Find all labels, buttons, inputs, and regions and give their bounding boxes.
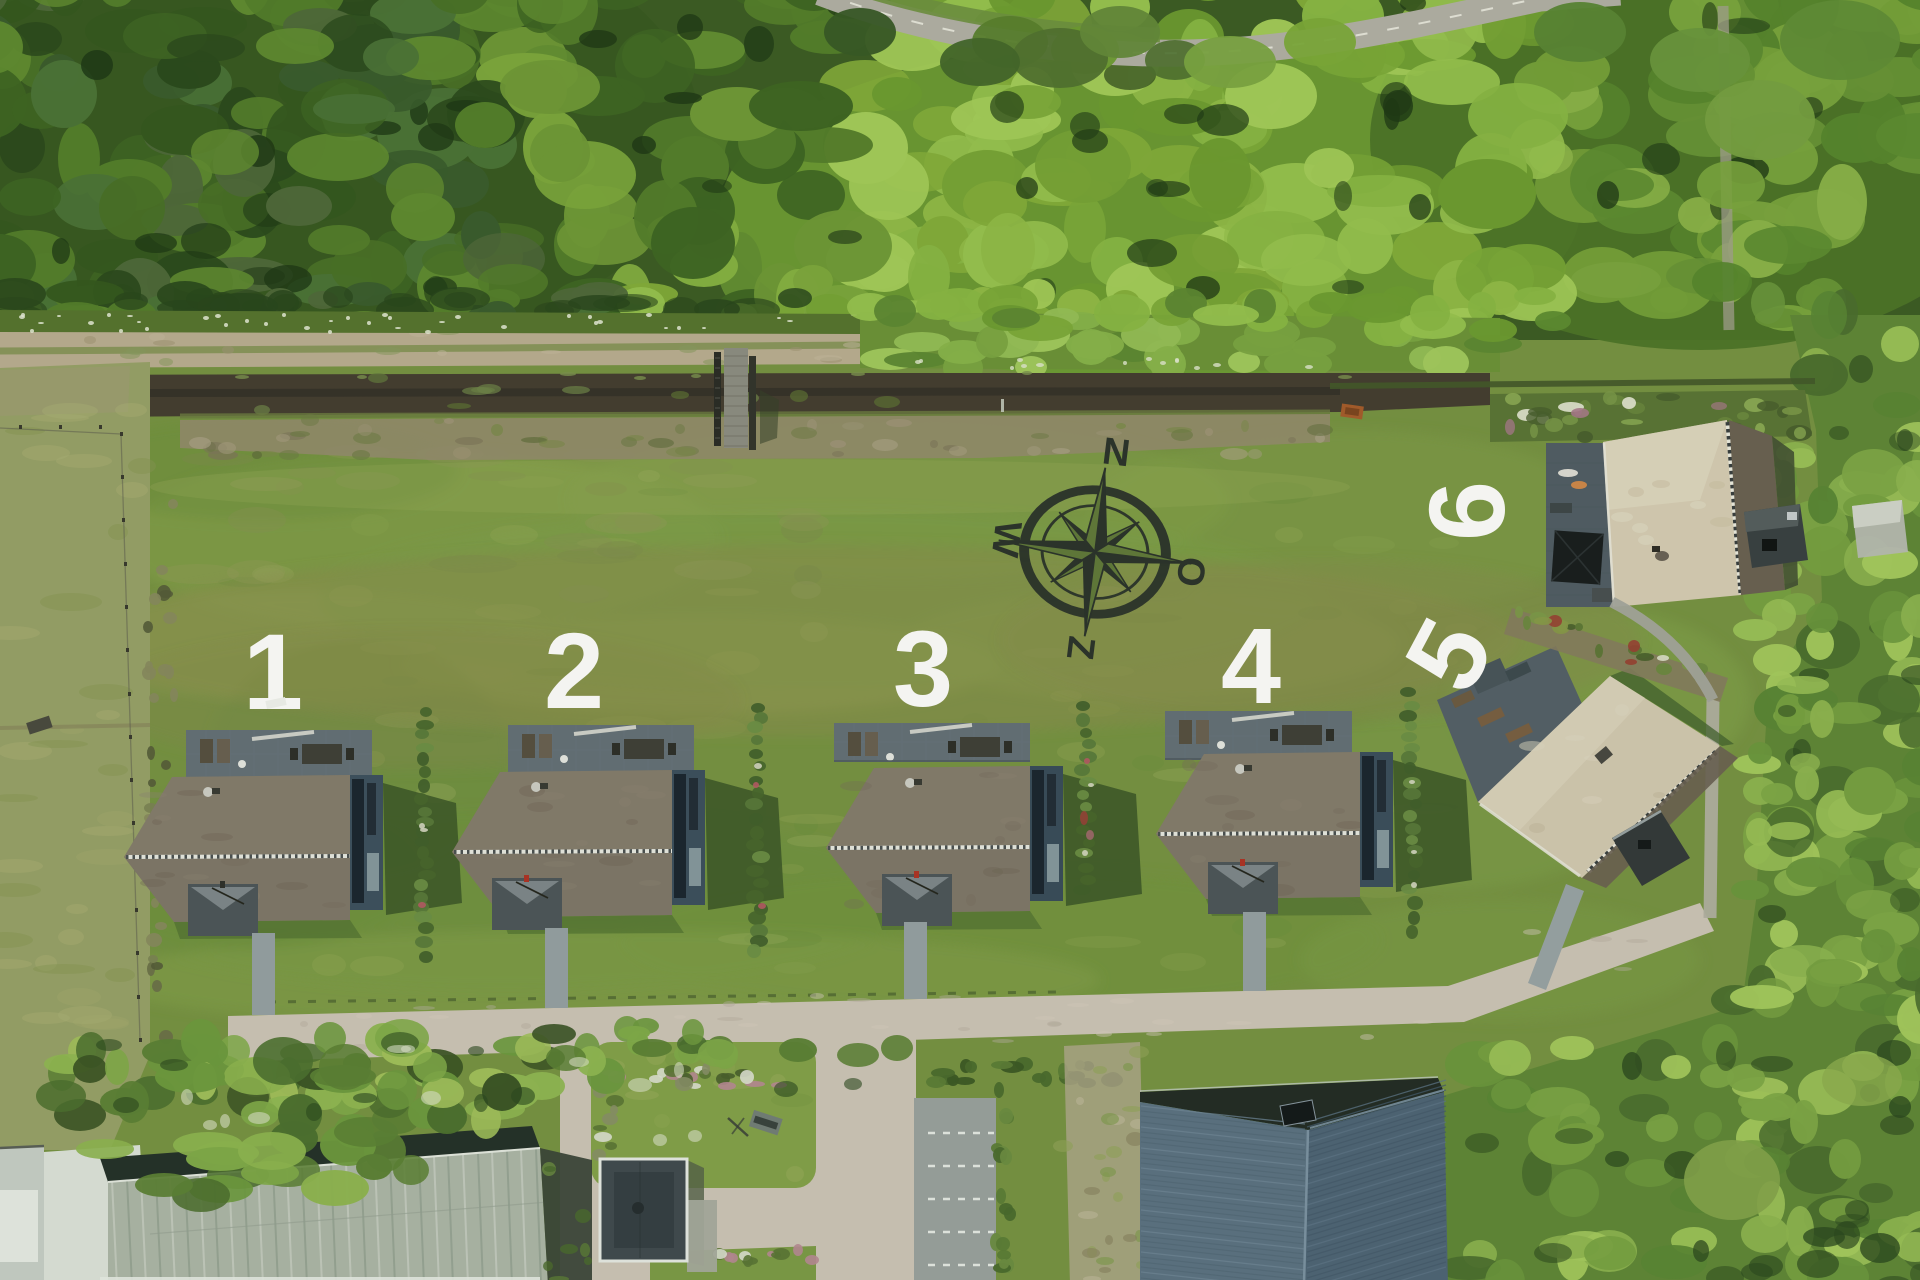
- svg-text:1: 1: [243, 611, 303, 732]
- svg-text:3: 3: [893, 608, 953, 729]
- svg-text:6: 6: [1406, 481, 1527, 541]
- svg-text:4: 4: [1221, 605, 1281, 726]
- svg-text:2: 2: [544, 610, 604, 731]
